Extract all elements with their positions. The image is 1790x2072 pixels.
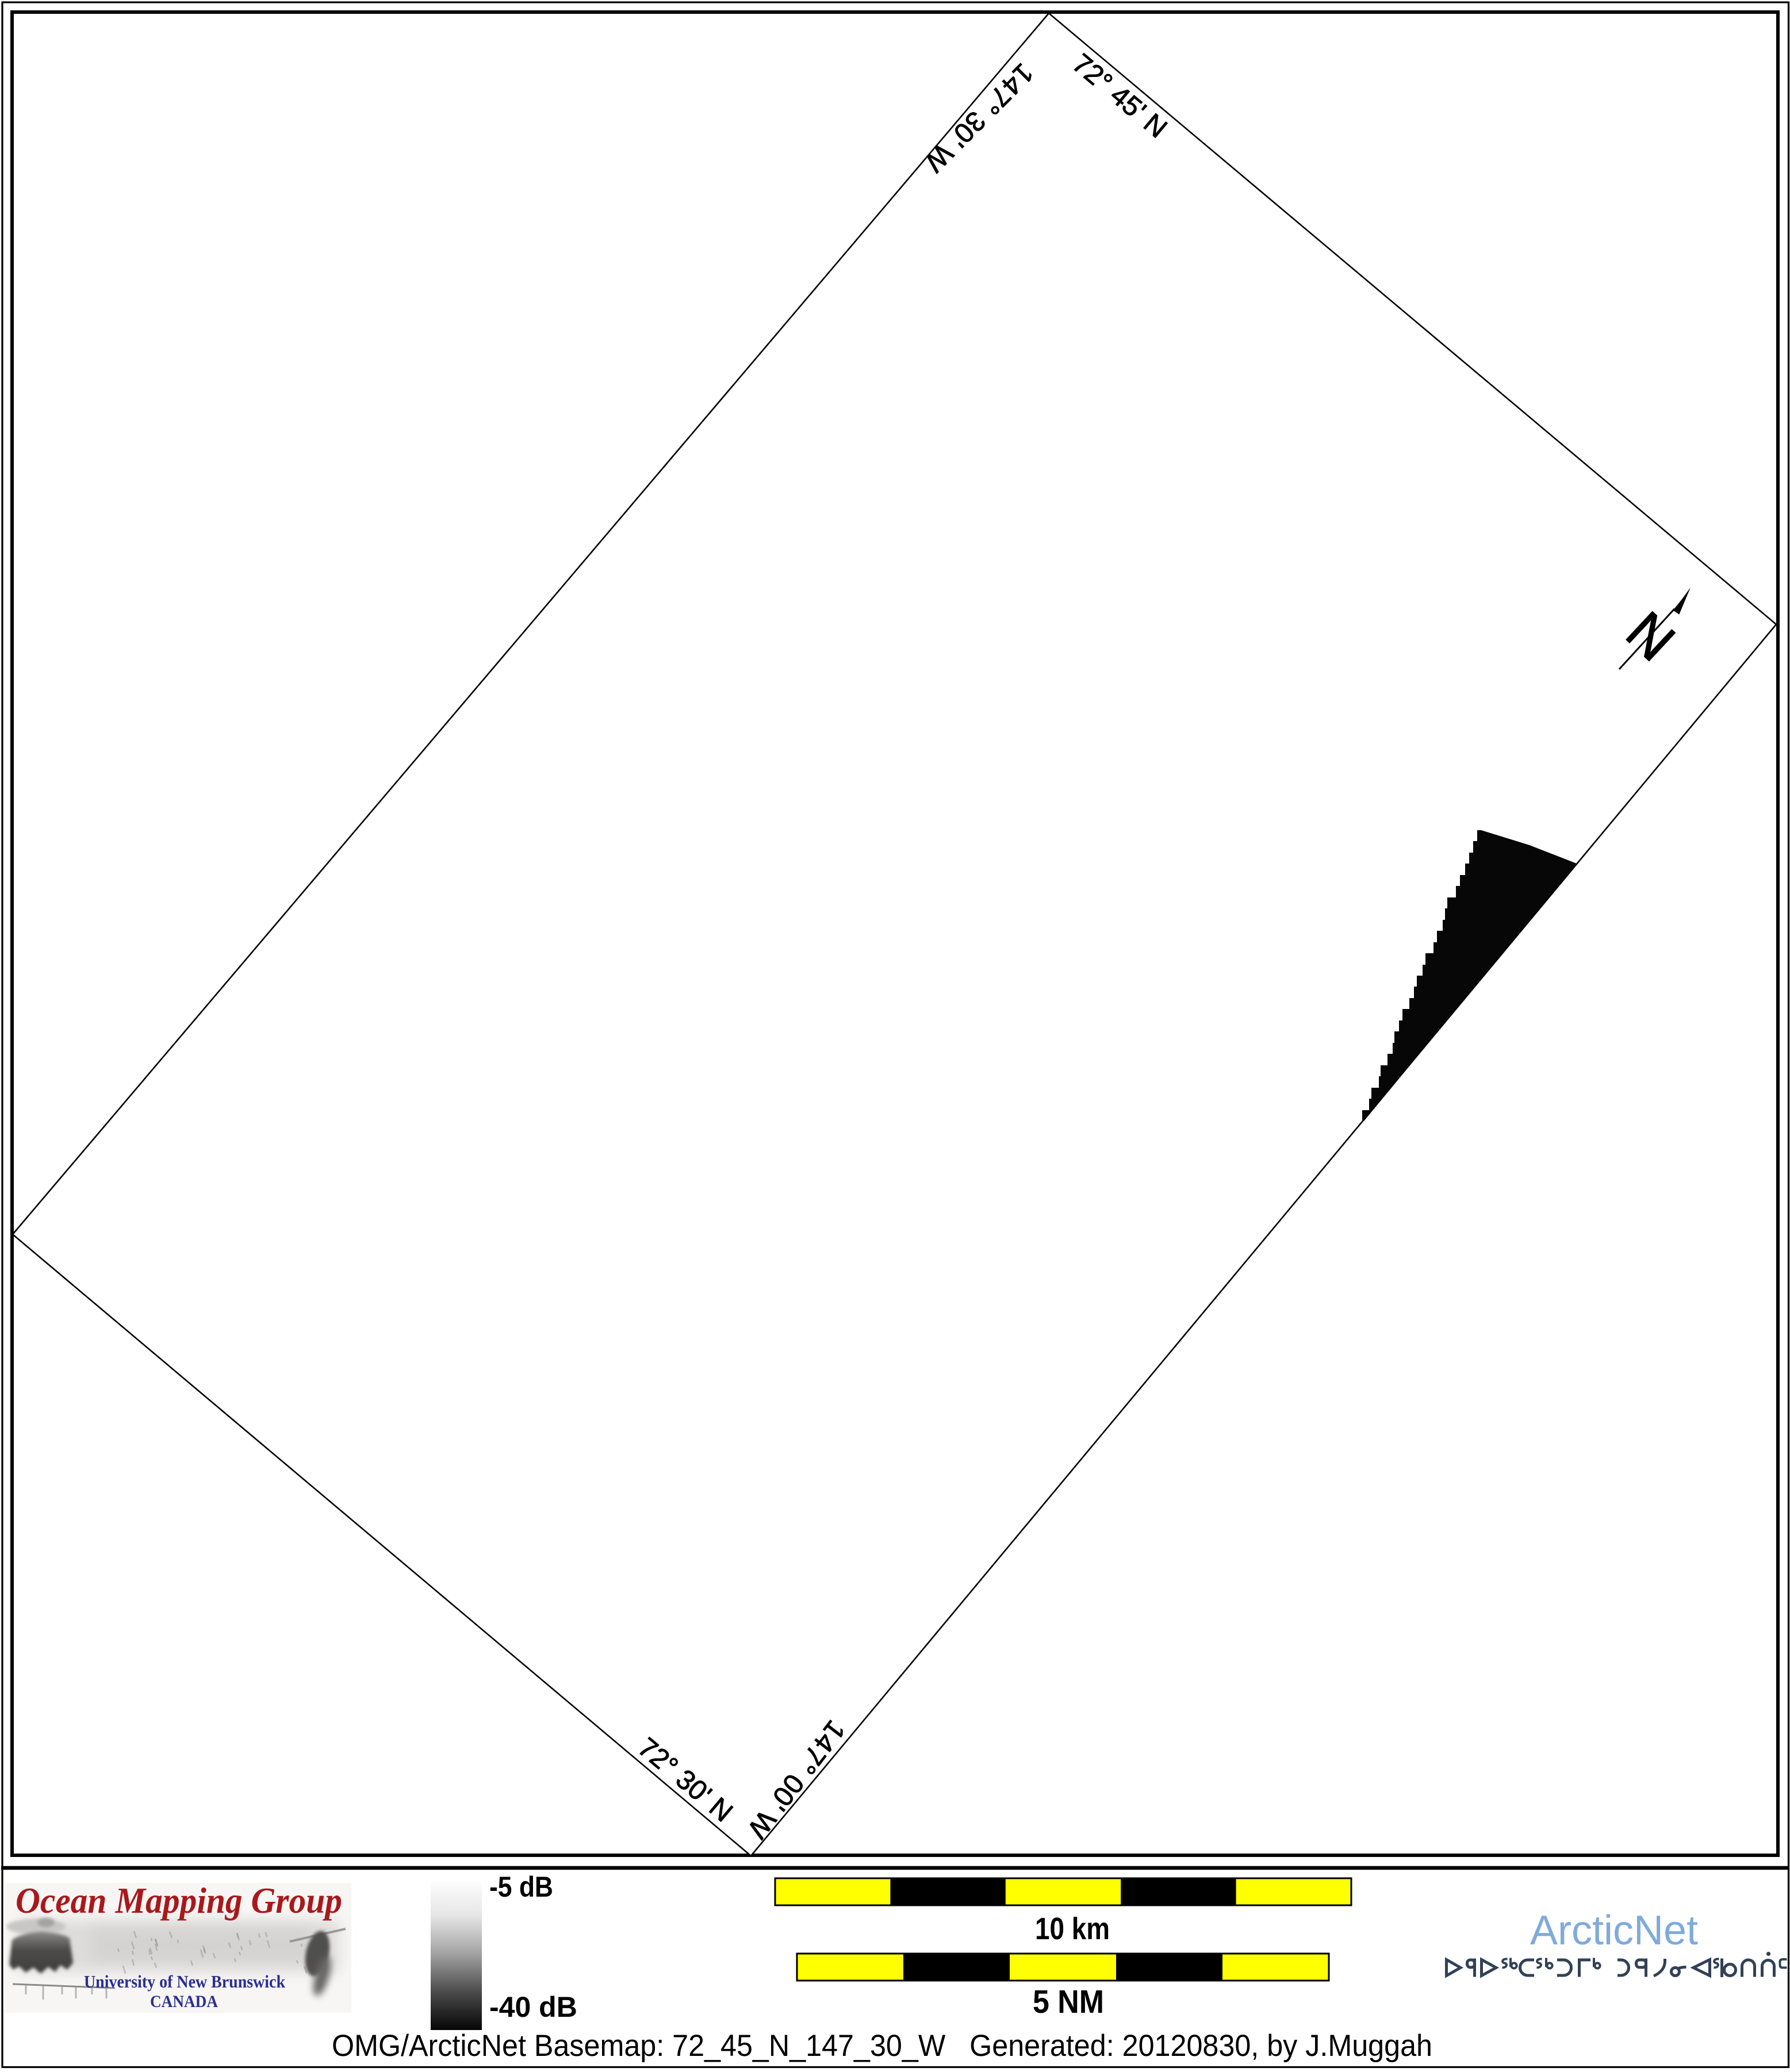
- svg-text:OMG/ArcticNet Basemap: 72_45_N: OMG/ArcticNet Basemap: 72_45_N_147_30_W …: [332, 2029, 1432, 2063]
- svg-text:University of New Brunswick: University of New Brunswick: [84, 1971, 286, 1992]
- svg-text:CANADA: CANADA: [150, 1992, 218, 2011]
- svg-text:-5 dB: -5 dB: [489, 1871, 553, 1903]
- svg-text:Ocean Mapping Group: Ocean Mapping Group: [16, 1880, 342, 1921]
- svg-text:ArcticNet: ArcticNet: [1530, 1908, 1698, 1954]
- svg-text:10 km: 10 km: [1035, 1912, 1110, 1946]
- svg-text:-40 dB: -40 dB: [489, 1991, 577, 2023]
- svg-text:5 NM: 5 NM: [1033, 1983, 1104, 2020]
